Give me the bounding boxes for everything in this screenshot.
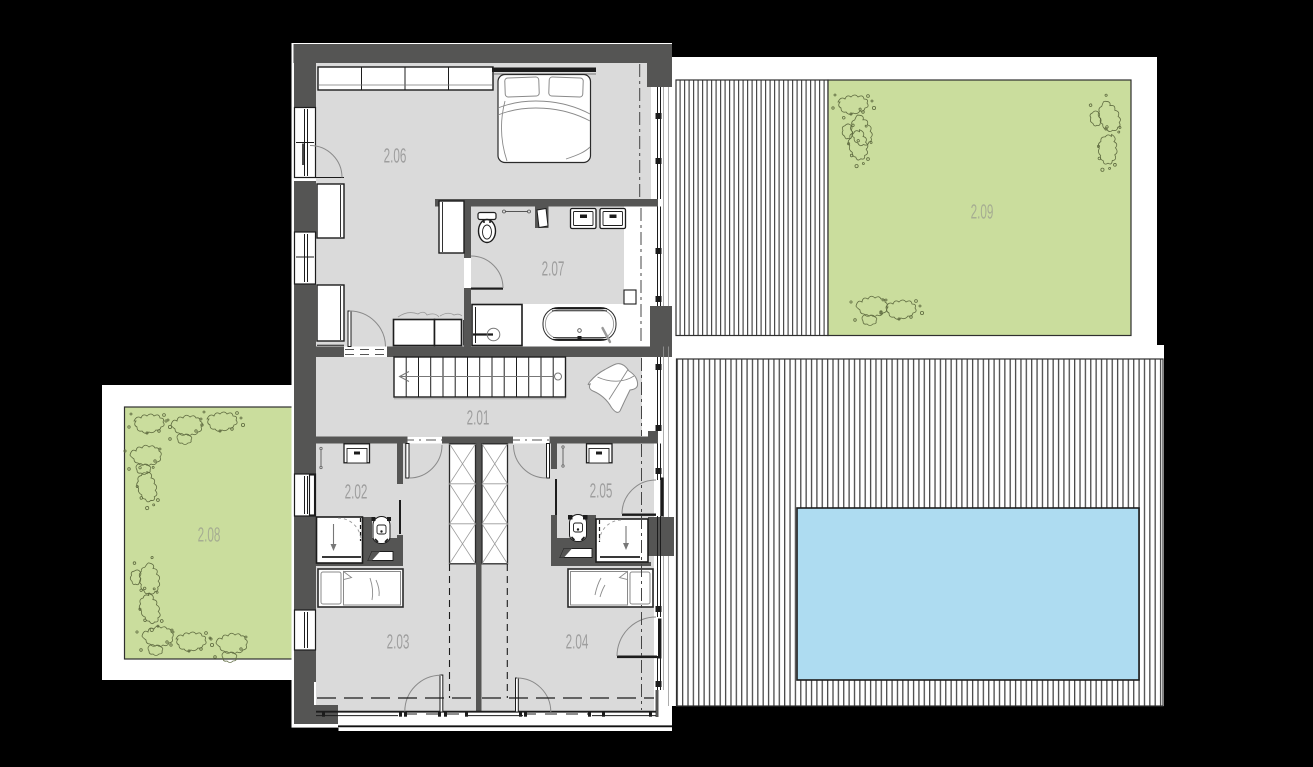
svg-text:2.03: 2.03 — [387, 630, 410, 653]
svg-text:2.09: 2.09 — [971, 200, 994, 223]
svg-text:2.02: 2.02 — [345, 480, 368, 503]
svg-text:2.01: 2.01 — [467, 406, 490, 429]
svg-text:2.08: 2.08 — [198, 523, 221, 546]
svg-text:2.04: 2.04 — [566, 630, 589, 653]
svg-text:2.07: 2.07 — [542, 257, 565, 280]
svg-text:2.06: 2.06 — [384, 144, 407, 167]
svg-text:2.05: 2.05 — [590, 479, 613, 502]
